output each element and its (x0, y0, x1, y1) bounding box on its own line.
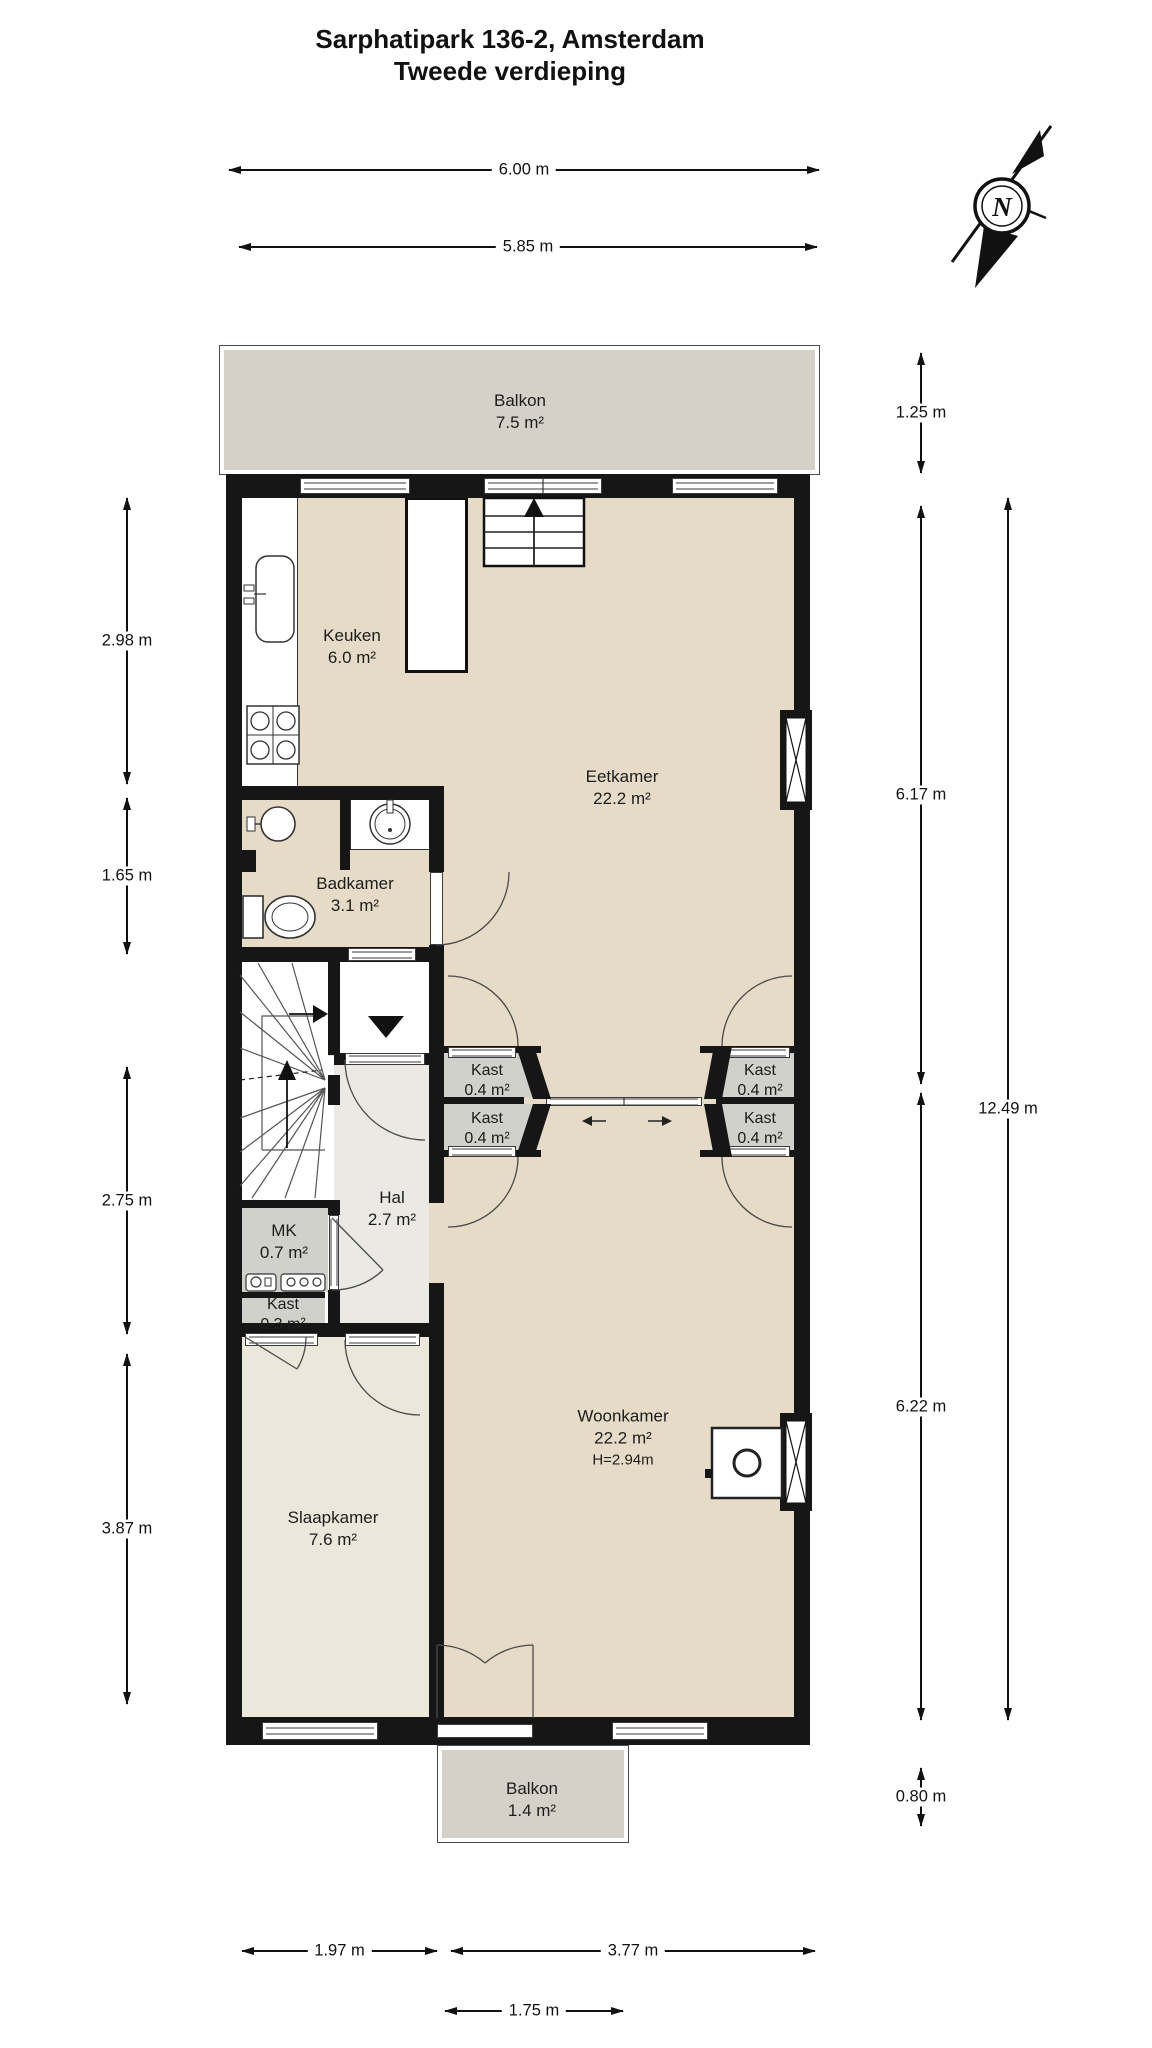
wall-badkamer-eetkamer-a (429, 786, 444, 872)
dim-left-2: 1.65 m (119, 797, 135, 955)
sliding-door-ensuite (546, 1097, 702, 1106)
page-subtitle: Tweede verdieping (394, 56, 626, 87)
arrowhead-icon (123, 942, 131, 955)
dim-left-4: 3.87 m (119, 1353, 135, 1705)
wall-outer-right (794, 474, 810, 1745)
room-height: H=2.94m (577, 1450, 668, 1471)
wall-kast-anchor-left (429, 1046, 444, 1157)
arrowhead-icon (807, 166, 820, 174)
room-name: Kast (737, 1061, 782, 1081)
door-balkon-top (484, 478, 602, 494)
wall-badkamer-stub (240, 850, 256, 872)
arrowhead-icon (123, 1322, 131, 1335)
arrowhead-icon (1004, 1708, 1012, 1721)
arrowhead-icon (123, 797, 131, 810)
arrowhead-icon (425, 1947, 438, 1955)
room-area: 22.2 m² (586, 788, 659, 810)
dim-bottom-1: 1.97 m (241, 1943, 438, 1959)
arrowhead-icon (917, 461, 925, 474)
arrowhead-icon (123, 1692, 131, 1705)
room-area: 6.0 m² (323, 647, 381, 669)
arrowhead-icon (611, 2007, 624, 2015)
kitchen-counter (240, 498, 298, 786)
arrowhead-icon (803, 1947, 816, 1955)
dim-right-2: 6.17 m (913, 505, 929, 1085)
dim-label: 12.49 m (971, 1100, 1045, 1119)
dim-right-1: 1.25 m (913, 352, 929, 474)
label-eetkamer: Eetkamer 22.2 m² (586, 766, 659, 810)
door-balkon-bottom (437, 1724, 533, 1738)
room-name: Balkon (494, 390, 546, 412)
arrowhead-icon (917, 1072, 925, 1085)
room-area: 0.4 m² (464, 1129, 509, 1149)
label-keuken: Keuken 6.0 m² (323, 625, 381, 669)
arrowhead-icon (917, 505, 925, 518)
label-mk: MK 0.7 m² (260, 1220, 308, 1264)
dim-label: 2.75 m (95, 1191, 159, 1210)
label-kast-rechts-boven: Kast 0.4 m² (737, 1061, 782, 1101)
room-name: Keuken (323, 625, 381, 647)
arrowhead-icon (450, 1947, 463, 1955)
dim-right-3: 6.22 m (913, 1092, 929, 1721)
wall-outer-left (226, 474, 242, 1745)
room-name: Hal (368, 1187, 416, 1209)
arrowhead-icon (917, 1092, 925, 1105)
room-name: Kast (464, 1061, 509, 1081)
page-title: Sarphatipark 136-2, Amsterdam (315, 24, 704, 55)
room-area: 7.6 m² (288, 1529, 379, 1551)
door-landing-hal (345, 1053, 425, 1065)
window-woonkamer (612, 1722, 708, 1740)
dim-label: 0.80 m (889, 1788, 953, 1807)
label-hal: Hal 2.7 m² (368, 1187, 416, 1231)
room-area: 0.4 m² (737, 1129, 782, 1149)
room-name: Slaapkamer (288, 1507, 379, 1529)
room-area: 0.3 m² (260, 1315, 305, 1335)
bathroom-counter (350, 798, 430, 850)
arrowhead-icon (241, 1947, 254, 1955)
wall-mk-top (240, 1200, 328, 1208)
dim-label: 1.97 m (307, 1942, 371, 1961)
wall-hal-woonkamer-b (429, 1283, 444, 1332)
arrowhead-icon (917, 1814, 925, 1827)
compass-icon: N (952, 126, 1051, 288)
arrowhead-icon (123, 772, 131, 785)
door-mk (329, 1215, 339, 1290)
arrowhead-icon (238, 243, 251, 251)
room-name: Kast (260, 1295, 305, 1315)
compass-label: N (991, 192, 1013, 222)
arrowhead-icon (228, 166, 241, 174)
dim-label: 6.00 m (492, 161, 556, 180)
window-keuken (300, 478, 410, 494)
room-area: 3.1 m² (316, 895, 393, 917)
arrowhead-icon (1004, 497, 1012, 510)
dim-label: 1.65 m (95, 867, 159, 886)
dim-bottom-3: 1.75 m (444, 2003, 624, 2019)
room-name: Woonkamer (577, 1406, 668, 1428)
dim-bottom-2: 3.77 m (450, 1943, 816, 1959)
floorplan: Sarphatipark 136-2, Amsterdam Tweede ver… (0, 0, 1152, 2048)
kitchen-block (405, 497, 468, 673)
dim-label: 2.98 m (95, 632, 159, 651)
room-area: 1.4 m² (506, 1800, 558, 1822)
label-kast-links-onder: Kast 0.4 m² (464, 1109, 509, 1149)
room-area: 0.4 m² (464, 1081, 509, 1101)
label-badkamer: Badkamer 3.1 m² (316, 873, 393, 917)
wall-badkamer-partition (340, 790, 350, 870)
door-kast-links-boven (448, 1047, 516, 1058)
room-name: Kast (737, 1109, 782, 1129)
label-balkon-top: Balkon 7.5 m² (494, 390, 546, 434)
window-eetkamer (672, 478, 778, 494)
room-name: MK (260, 1220, 308, 1242)
dim-right-4: 0.80 m (913, 1767, 929, 1827)
arrowhead-icon (917, 1708, 925, 1721)
dim-left-3: 2.75 m (119, 1066, 135, 1335)
room-name: Badkamer (316, 873, 393, 895)
door-kast-rechts-boven (724, 1047, 790, 1058)
dim-label: 6.17 m (889, 786, 953, 805)
label-kast-klein: Kast 0.3 m² (260, 1295, 305, 1335)
wall-slaapkamer-woonkamer (429, 1332, 444, 1717)
dim-label: 3.87 m (95, 1520, 159, 1539)
room-area: 0.7 m² (260, 1242, 308, 1264)
label-kast-rechts-onder: Kast 0.4 m² (737, 1109, 782, 1149)
arrowhead-icon (805, 243, 818, 251)
dim-label: 6.22 m (889, 1397, 953, 1416)
wall-mk-right-a (328, 1200, 340, 1215)
door-badkamer-eetkamer (430, 872, 443, 945)
arrowhead-icon (444, 2007, 457, 2015)
arrowhead-icon (123, 1353, 131, 1366)
room-name: Eetkamer (586, 766, 659, 788)
label-slaapkamer: Slaapkamer 7.6 m² (288, 1507, 379, 1551)
label-balkon-bottom: Balkon 1.4 m² (506, 1778, 558, 1822)
room-area: 22.2 m² (577, 1428, 668, 1450)
wall-stair-landing (328, 962, 340, 1055)
dim-label: 1.25 m (889, 404, 953, 423)
arrowhead-icon (123, 1066, 131, 1079)
room-area: 2.7 m² (368, 1209, 416, 1231)
arrowhead-icon (917, 1767, 925, 1780)
door-hal-slaapkamer (345, 1333, 420, 1346)
room-name: Kast (464, 1109, 509, 1129)
floor-stair-landing (340, 962, 429, 1053)
label-woonkamer: Woonkamer 22.2 m² H=2.94m (577, 1406, 668, 1471)
wall-stair-stub (328, 1075, 340, 1105)
dim-right-total: 12.49 m (1000, 497, 1016, 1721)
window-slaapkamer (262, 1722, 378, 1740)
door-badkamer-hal (348, 948, 416, 961)
floor-stairwell (240, 962, 328, 1200)
wall-landing-hal-l (334, 1053, 345, 1065)
wall-hal-woonkamer-a (429, 1150, 444, 1203)
dim-left-1: 2.98 m (119, 497, 135, 785)
arrowhead-icon (123, 497, 131, 510)
room-area: 0.4 m² (737, 1081, 782, 1101)
room-name: Balkon (506, 1778, 558, 1800)
label-kast-links-boven: Kast 0.4 m² (464, 1061, 509, 1101)
dim-label: 1.75 m (502, 2002, 566, 2021)
wall-badkamer-eetkamer-b (429, 945, 444, 1053)
arrowhead-icon (917, 352, 925, 365)
dim-label: 3.77 m (601, 1942, 665, 1961)
room-area: 7.5 m² (494, 412, 546, 434)
dim-top-inner: 5.85 m (238, 239, 818, 255)
dim-top-outer: 6.00 m (228, 162, 820, 178)
dim-label: 5.85 m (496, 238, 560, 257)
